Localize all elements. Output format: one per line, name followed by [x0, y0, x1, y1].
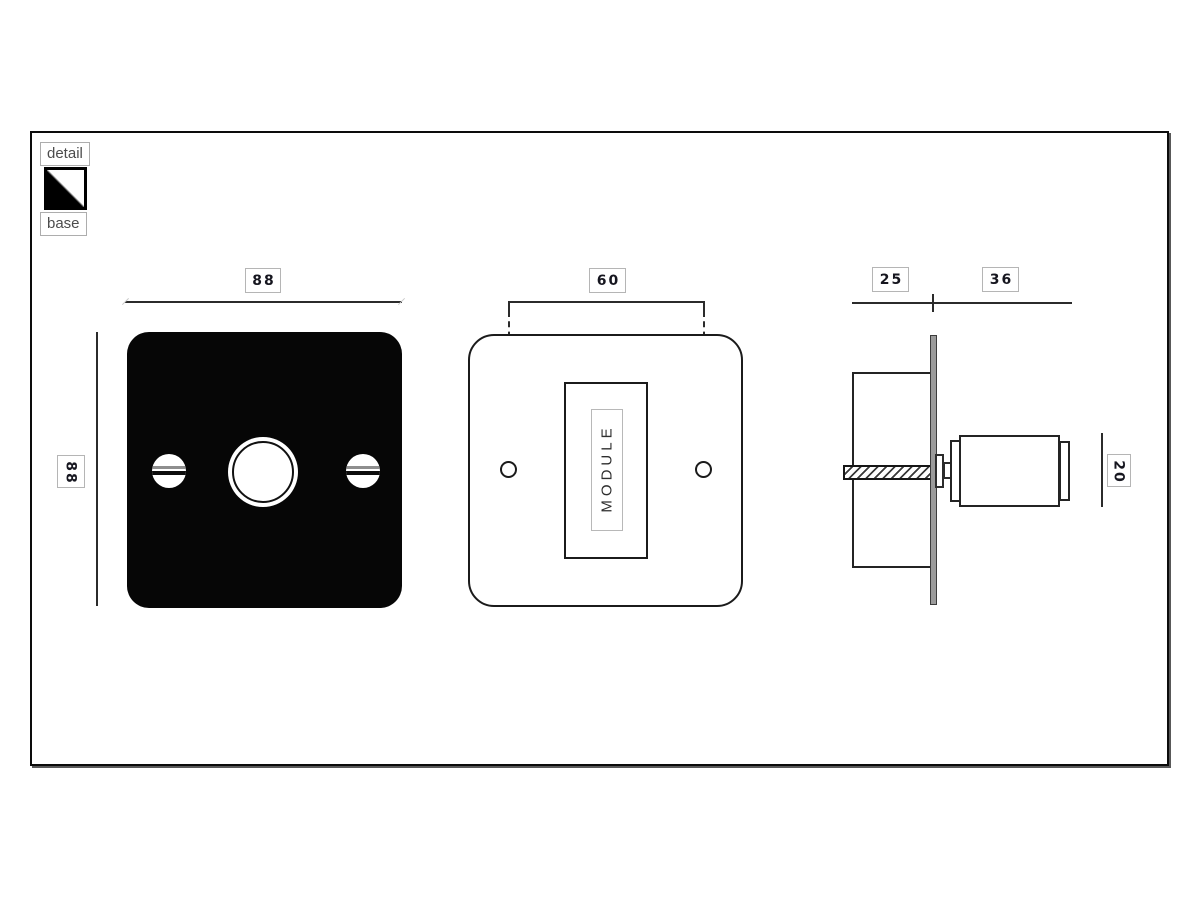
dim-end-drop-left: [508, 301, 510, 311]
legend-base-label: base: [40, 212, 87, 236]
dim-knob-height-label: 20: [1107, 454, 1131, 487]
screw-slot: [346, 471, 380, 475]
knob-cap-right: [1059, 441, 1070, 501]
screw-slot: [152, 471, 186, 475]
dim-front-width-line: [125, 301, 402, 303]
module-label-box: MODULE: [591, 409, 623, 531]
screw-slot-highlight: [346, 466, 380, 469]
screw-slot-highlight: [152, 466, 186, 469]
dim-front-depth-label: 36: [982, 267, 1019, 292]
dim-hole-spacing-line: [508, 301, 705, 303]
dim-hole-spacing-label: 60: [589, 268, 626, 293]
knob-body-side: [959, 435, 1060, 507]
dim-tick-right: [398, 298, 405, 305]
mounting-hole-left: [500, 461, 517, 478]
dim-depth-line: [852, 302, 1072, 304]
dim-knob-height-value: 20: [1111, 458, 1127, 483]
detail-base-icon: [44, 167, 87, 210]
mounting-hole-right: [695, 461, 712, 478]
screw-right: [346, 454, 380, 488]
dim-front-height-value: 88: [63, 459, 79, 484]
dim-front-height-label: 88: [57, 455, 85, 488]
threaded-screw-side: [843, 465, 932, 480]
dim-hole-spacing-value: 60: [595, 273, 620, 289]
dimmer-knob-ring: [232, 441, 294, 503]
dim-front-width-label: 88: [245, 268, 281, 293]
dim-back-depth-label: 25: [872, 267, 909, 292]
dim-back-depth-value: 25: [878, 272, 903, 288]
dim-front-depth-value: 36: [988, 272, 1013, 288]
module-label-text: MODULE: [599, 424, 616, 516]
drawing-page: detail base 88 88 60: [0, 0, 1200, 900]
dim-front-width-value: 88: [250, 273, 275, 289]
dim-end-drop-right: [703, 301, 705, 311]
drawing-frame: detail base 88 88 60: [30, 131, 1169, 766]
dim-front-height-line: [96, 332, 98, 606]
dim-knob-height-line: [1101, 433, 1103, 507]
legend-detail-label: detail: [40, 142, 90, 166]
dim-depth-divider-tick: [932, 294, 934, 312]
dimmer-knob: [228, 437, 298, 507]
screw-left: [152, 454, 186, 488]
